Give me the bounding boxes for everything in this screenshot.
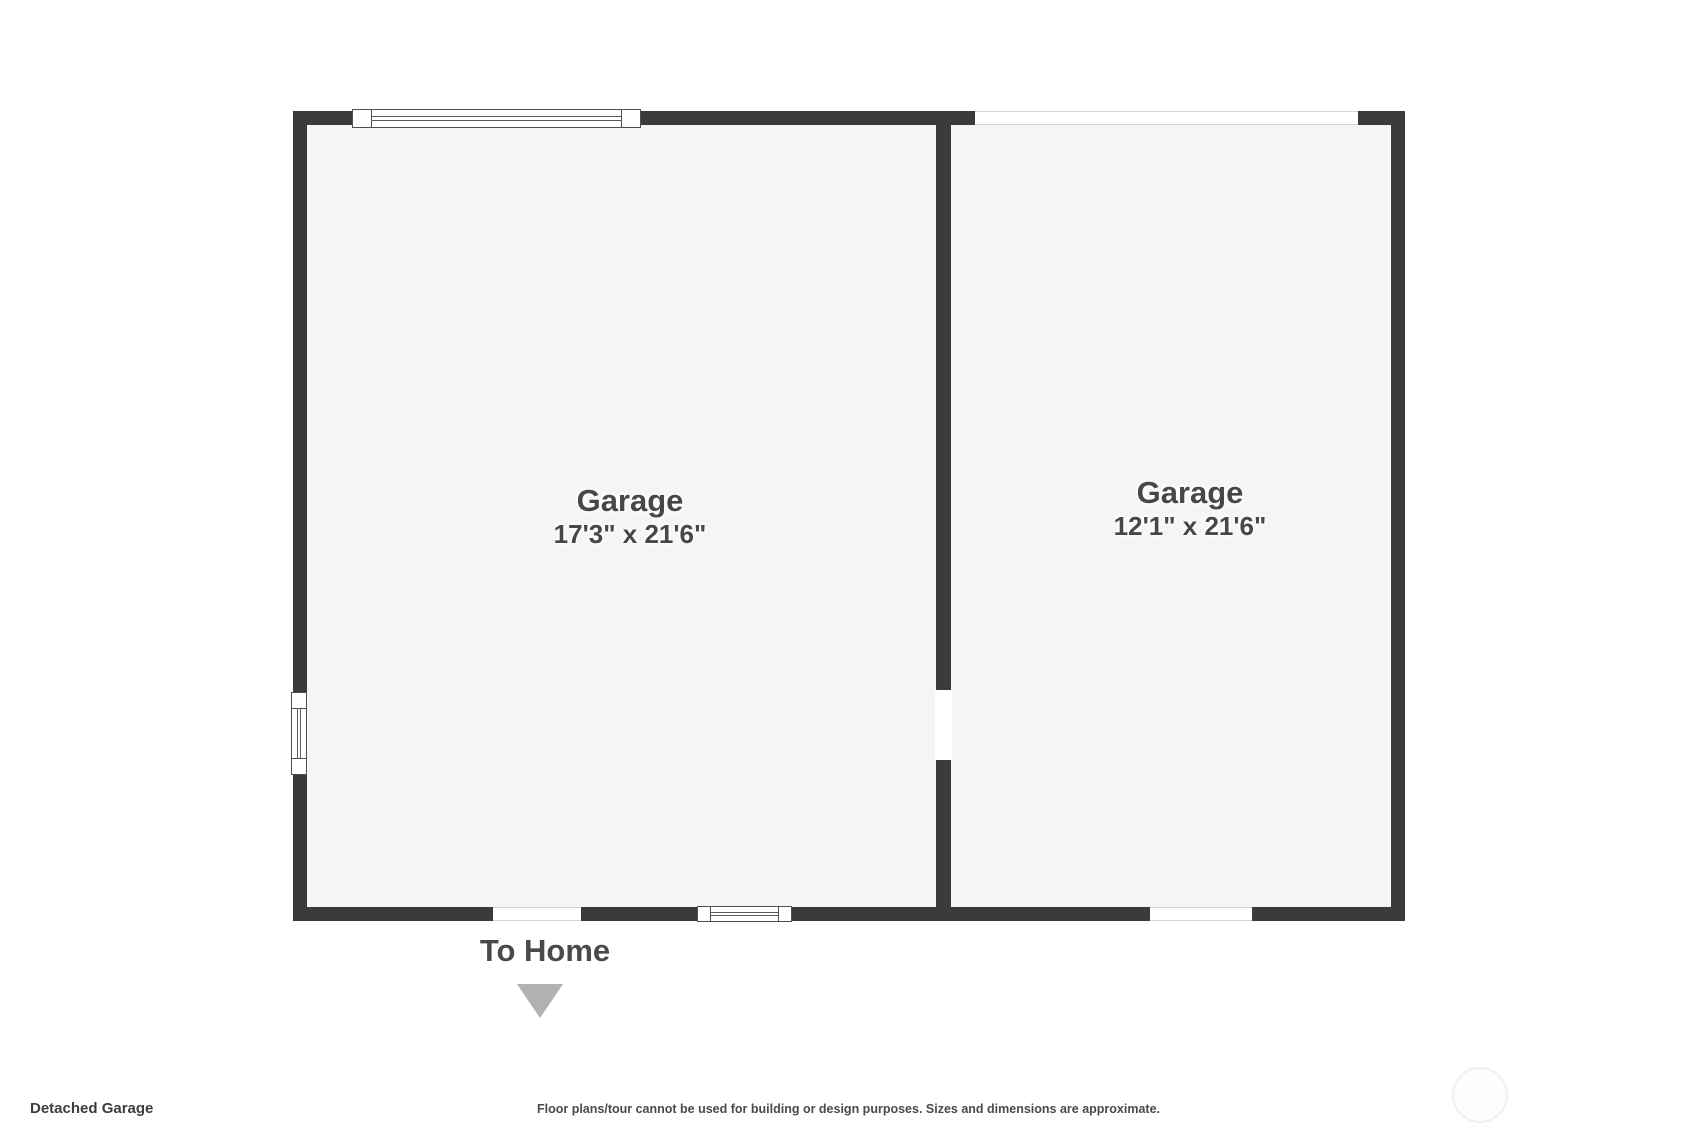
door-opening-bottom-right <box>1150 907 1252 921</box>
door-opening-to-home <box>493 907 581 921</box>
window-end-pane <box>292 758 306 774</box>
watermark-circle-logo <box>1452 1067 1508 1123</box>
window-glass <box>711 907 778 921</box>
window-end-pane <box>621 110 640 127</box>
to-home-label: To Home <box>480 933 610 969</box>
middle-wall-opening <box>935 690 952 760</box>
room-label-garage-right: Garage 12'1" x 21'6" <box>1114 475 1267 542</box>
window-bottom-left-room <box>697 906 792 922</box>
disclaimer-text: Floor plans/tour cannot be used for buil… <box>0 1102 1697 1116</box>
room-name: Garage <box>1114 475 1267 511</box>
window-end-pane <box>353 110 372 127</box>
window-end-pane <box>778 907 791 921</box>
garage-door-opening-top-right <box>975 111 1358 125</box>
window-end-pane <box>698 907 711 921</box>
room-name: Garage <box>554 483 707 519</box>
floor-plan-canvas: Garage 17'3" x 21'6" Garage 12'1" x 21'6… <box>293 111 1405 921</box>
window-end-pane <box>292 693 306 709</box>
window-left-wall <box>291 692 307 775</box>
room-dimensions: 12'1" x 21'6" <box>1114 511 1267 542</box>
to-home-down-arrow-icon <box>517 984 563 1018</box>
room-label-garage-left: Garage 17'3" x 21'6" <box>554 483 707 550</box>
window-glass <box>372 110 621 127</box>
window-top-left <box>352 109 641 128</box>
floor-plan-page: Garage 17'3" x 21'6" Garage 12'1" x 21'6… <box>0 0 1697 1131</box>
window-glass <box>292 709 306 758</box>
room-dimensions: 17'3" x 21'6" <box>554 519 707 550</box>
